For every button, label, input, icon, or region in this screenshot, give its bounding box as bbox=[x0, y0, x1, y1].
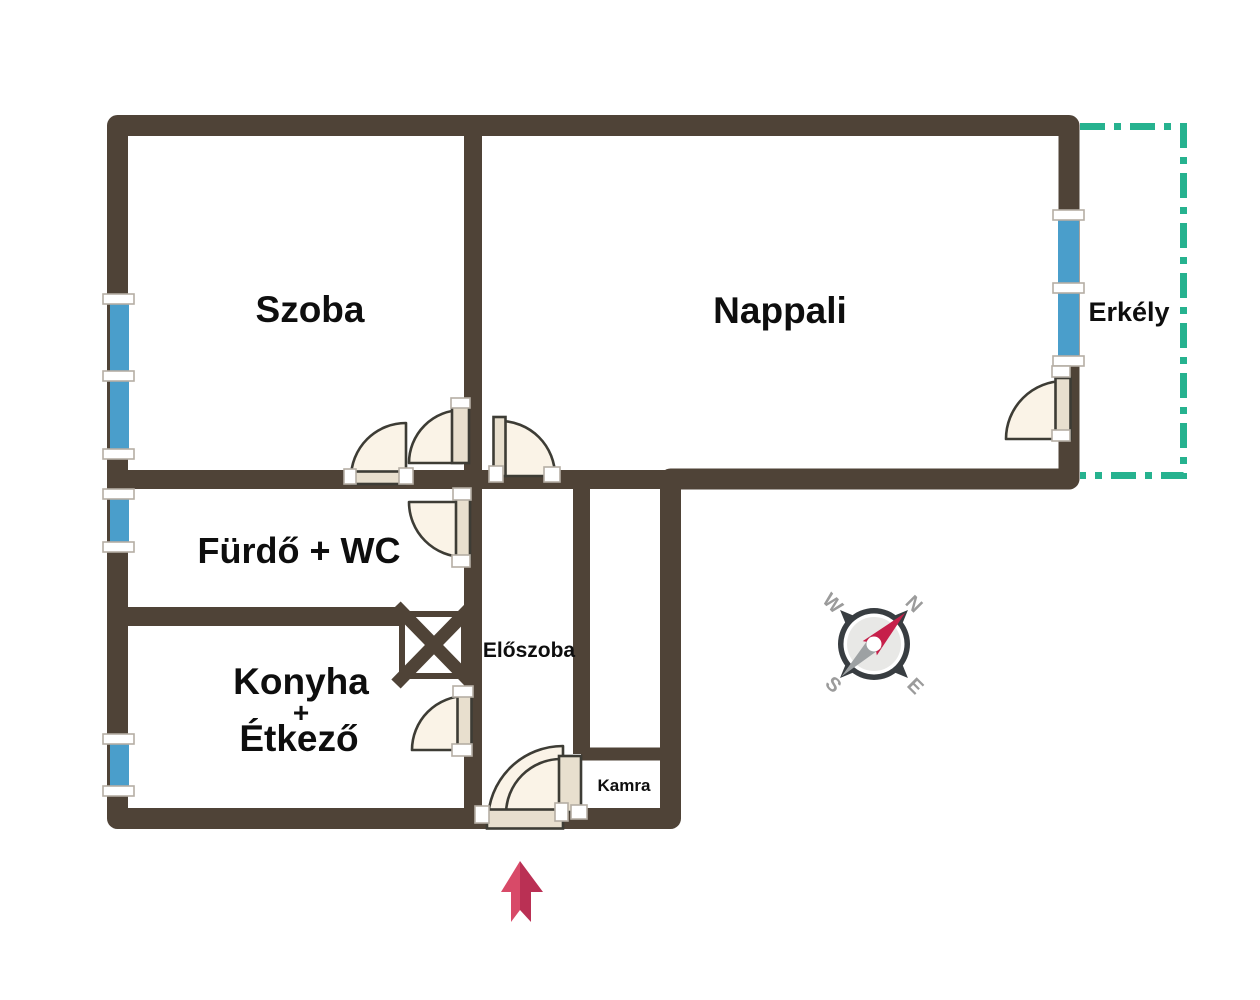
window-szoba-upper bbox=[110, 302, 129, 376]
entrance-arrow-icon bbox=[501, 861, 543, 922]
room-label-erkely: Erkély bbox=[1088, 297, 1169, 327]
door-szoba-nappali bbox=[409, 398, 470, 463]
room-label-furdo: Fürdő + WC bbox=[198, 530, 401, 571]
room-label-szoba: Szoba bbox=[256, 289, 365, 330]
door-kamra bbox=[555, 756, 587, 821]
walls bbox=[107, 125, 1069, 819]
door-nappali-eloszoba bbox=[489, 417, 560, 482]
room-labels: Szoba Nappali Erkély Fürdő + WC Konyha +… bbox=[198, 289, 1170, 795]
window-szoba-lower bbox=[110, 379, 129, 453]
window-nappali-upper bbox=[1058, 219, 1079, 286]
room-label-konyha-line1: Konyha bbox=[233, 661, 369, 702]
door-konyha bbox=[412, 686, 473, 756]
room-label-konyha-line3: Étkező bbox=[239, 718, 358, 759]
room-label-eloszoba: Előszoba bbox=[483, 639, 576, 662]
entrance-arrow-left-half bbox=[501, 861, 520, 922]
door-erkely bbox=[1006, 366, 1071, 441]
door-szoba-furdo bbox=[344, 423, 413, 484]
floor-plan-canvas: N E S W Szoba Nappali Erkély Fürdő + WC … bbox=[0, 0, 1260, 1000]
window-konyha bbox=[110, 742, 129, 788]
compass-label-e: E bbox=[903, 674, 928, 699]
window-furdo bbox=[110, 497, 129, 545]
room-label-kamra: Kamra bbox=[598, 776, 651, 795]
shaft-x-symbol bbox=[396, 606, 472, 684]
room-label-nappali: Nappali bbox=[713, 290, 847, 331]
compass-icon: N E S W bbox=[778, 549, 968, 739]
doors bbox=[344, 366, 1071, 829]
window-caps bbox=[103, 210, 1084, 796]
window-nappali-lower bbox=[1058, 289, 1079, 359]
entrance-arrow-right-half bbox=[520, 861, 543, 922]
door-entrance bbox=[475, 746, 563, 829]
door-furdo bbox=[409, 488, 471, 567]
